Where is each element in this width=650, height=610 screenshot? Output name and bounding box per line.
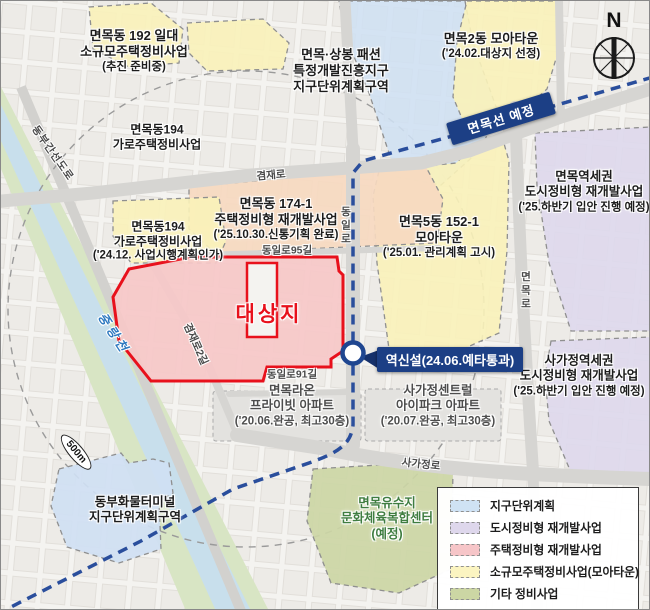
label-myeonmok-station-area: 면목역세권 도시정비형 재개발사업 ('25.하반기 입안 진행 예정): [518, 170, 649, 215]
label-raon-apartment: 면목라온 프라이빗 아파트 ('20.06.완공, 최고30층): [235, 384, 349, 429]
street-gyeomjae: 겸재로: [256, 166, 286, 183]
compass-north-label: N: [606, 9, 621, 33]
label-area-192: 면목동 192 일대 소규모주택정비사업 (추진 준비중): [80, 28, 188, 74]
label-yusuji-center: 면목유수지 문화체육복합센터 (예정): [341, 496, 433, 542]
label-target-site: 대상지: [236, 302, 303, 328]
label-sagajeong-station-area: 사가정역세권 도시정비형 재개발사업 ('25.하반기 입안 진행 예정): [513, 354, 644, 399]
label-area-174: 면목동 174-1 주택정비형 재개발사업 ('25.10.30.신통기획 완료…: [213, 196, 338, 242]
map-canvas: 면목동 192 일대 소규모주택정비사업 (추진 준비중) 면목동194 가로주…: [0, 0, 650, 610]
legend-swatch: [450, 588, 480, 600]
street-dongil95: 동일로95길: [262, 243, 312, 258]
legend-label: 기타 정비사업: [490, 585, 558, 602]
label-area-194-top: 면목동194 가로주택정비사업: [113, 122, 201, 151]
legend-item: 소규모주택정비사업(모아타운): [450, 563, 628, 580]
label-area-194: 면목동194 가로주택정비사업 ('24.12. 사업시행계획인가): [93, 219, 223, 262]
legend-label: 지구단위계획: [490, 497, 555, 514]
legend-label: 도시정비형 재개발사업: [490, 519, 602, 536]
banner-new-station: 역신설(24.06.예타통과): [377, 347, 523, 372]
label-moa-2dong: 면목2동 모아타운 ('24.02.대상지 선정): [442, 31, 540, 61]
legend-item: 도시정비형 재개발사업: [450, 519, 628, 536]
legend-swatch: [450, 544, 480, 556]
legend-item: 기타 정비사업: [450, 585, 628, 602]
legend-swatch: [450, 500, 480, 512]
legend-label: 소규모주택정비사업(모아타운): [490, 563, 639, 580]
street-myeonmok-ro: 면목로: [519, 271, 534, 312]
legend-swatch: [450, 522, 480, 534]
legend-item: 주택정비형 재개발사업: [450, 541, 628, 558]
label-fashion-district: 면목·상봉 패션 특정개발진흥지구 지구단위계획구역: [293, 47, 389, 95]
region-target-site: [113, 257, 343, 381]
legend-label: 주택정비형 재개발사업: [490, 541, 602, 558]
street-dongil: 동일로: [339, 206, 354, 247]
label-terminal-district: 동부화물터미널 지구단위계획구역: [89, 495, 181, 526]
legend-swatch: [450, 566, 480, 578]
label-ipark-apartment: 사가정센트럴 아이파크 아파트 ('20.07.완공, 최고30층): [381, 384, 495, 429]
new-station-marker: [343, 343, 364, 364]
label-moa-152: 면목5동 152-1 모아타운 ('25.01. 관리계획 고시): [383, 214, 495, 260]
legend-box: 지구단위계획도시정비형 재개발사업주택정비형 재개발사업소규모주택정비사업(모아…: [437, 487, 639, 610]
legend-list: 지구단위계획도시정비형 재개발사업주택정비형 재개발사업소규모주택정비사업(모아…: [450, 497, 628, 610]
street-dongil91: 동일로91길: [267, 367, 317, 382]
compass-icon: [593, 37, 635, 79]
legend-item: 지구단위계획: [450, 497, 628, 514]
